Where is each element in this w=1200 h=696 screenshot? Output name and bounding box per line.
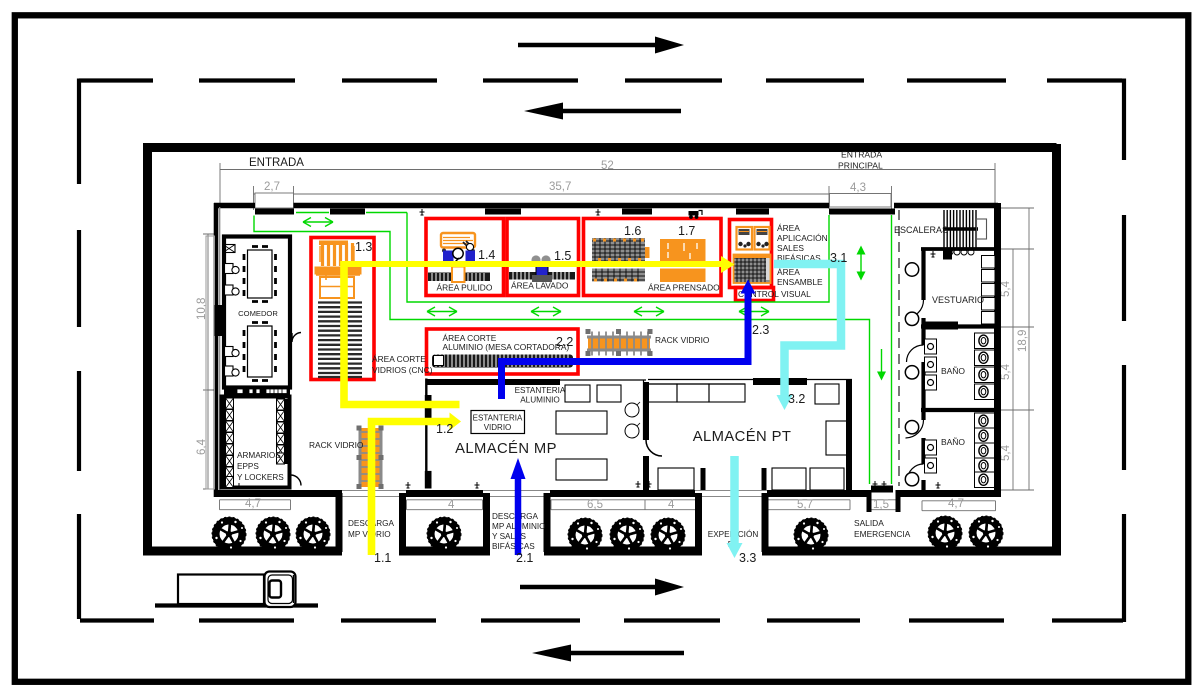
- svg-text:ÁREA CORTE: ÁREA CORTE: [372, 354, 426, 364]
- svg-text:1.3: 1.3: [355, 240, 372, 254]
- svg-text:EPPS: EPPS: [237, 462, 259, 471]
- svg-text:1,5: 1,5: [873, 499, 889, 511]
- svg-text:ALMACÉN PT: ALMACÉN PT: [693, 428, 792, 445]
- svg-text:ÁREA LAVADO: ÁREA LAVADO: [511, 281, 569, 291]
- svg-text:BAÑO: BAÑO: [941, 366, 965, 376]
- svg-text:ÁREA: ÁREA: [777, 223, 800, 233]
- svg-text:2.3: 2.3: [752, 323, 769, 337]
- svg-text:SALIDA: SALIDA: [854, 518, 884, 528]
- svg-text:ALUMINIO (MESA CORTADORA): ALUMINIO (MESA CORTADORA): [443, 342, 570, 352]
- svg-text:4,7: 4,7: [948, 498, 964, 510]
- svg-text:ALUMINIO: ALUMINIO: [520, 396, 560, 405]
- svg-text:1.4: 1.4: [478, 248, 495, 262]
- svg-text:2.2: 2.2: [556, 335, 573, 349]
- svg-text:4: 4: [668, 499, 675, 511]
- svg-text:APLICACIÓN: APLICACIÓN: [777, 233, 828, 243]
- svg-text:4: 4: [448, 499, 455, 511]
- svg-text:COMEDOR: COMEDOR: [238, 309, 278, 318]
- svg-text:ÁREA PULIDO: ÁREA PULIDO: [437, 283, 493, 293]
- svg-text:VIDRIOS (CNC): VIDRIOS (CNC): [372, 365, 433, 375]
- svg-text:3.1: 3.1: [830, 251, 847, 265]
- svg-text:ESTANTERIA: ESTANTERIA: [473, 414, 523, 423]
- svg-text:BIFÁSICAS: BIFÁSICAS: [492, 541, 535, 551]
- svg-text:ESCALERAS: ESCALERAS: [894, 225, 948, 235]
- svg-text:ENTRADA: ENTRADA: [249, 157, 304, 169]
- svg-text:5,7: 5,7: [797, 499, 813, 511]
- svg-text:5,4: 5,4: [1000, 280, 1012, 297]
- svg-text:ÁREA: ÁREA: [777, 267, 800, 277]
- svg-text:2,7: 2,7: [264, 181, 280, 193]
- svg-text:ESTANTERIA: ESTANTERIA: [515, 386, 566, 395]
- svg-text:52: 52: [601, 160, 614, 172]
- svg-text:ALMACÉN MP: ALMACÉN MP: [455, 440, 557, 457]
- svg-text:4,3: 4,3: [850, 182, 866, 194]
- svg-text:ÁREA PRENSADO: ÁREA PRENSADO: [648, 283, 720, 293]
- svg-text:ARMARIOS: ARMARIOS: [237, 451, 281, 460]
- svg-text:Y LOCKERS: Y LOCKERS: [237, 473, 284, 482]
- svg-text:BAÑO: BAÑO: [941, 437, 965, 447]
- svg-text:SALES: SALES: [777, 243, 804, 253]
- svg-text:PRINCIPAL: PRINCIPAL: [838, 161, 883, 171]
- svg-text:ENSAMBLE: ENSAMBLE: [777, 277, 823, 287]
- svg-text:3.3: 3.3: [739, 551, 756, 565]
- svg-text:35,7: 35,7: [549, 181, 571, 193]
- svg-text:5,4: 5,4: [1000, 363, 1012, 380]
- svg-text:EMERGENCIA: EMERGENCIA: [854, 529, 911, 539]
- svg-text:1.1: 1.1: [374, 551, 391, 565]
- svg-text:RACK VIDRIO: RACK VIDRIO: [309, 440, 364, 450]
- svg-text:4,7: 4,7: [245, 498, 261, 510]
- svg-text:18,9: 18,9: [1017, 330, 1029, 352]
- svg-text:1.2: 1.2: [436, 422, 453, 436]
- svg-text:1.5: 1.5: [554, 249, 571, 263]
- svg-text:5,4: 5,4: [1000, 444, 1012, 461]
- svg-text:Y SALES: Y SALES: [492, 532, 527, 541]
- svg-text:6,5: 6,5: [587, 499, 603, 511]
- svg-text:3.2: 3.2: [788, 392, 805, 406]
- svg-text:2.1: 2.1: [516, 551, 533, 565]
- svg-text:ENTRADA: ENTRADA: [841, 150, 882, 160]
- svg-text:1.7: 1.7: [678, 224, 695, 238]
- svg-text:RACK VIDRIO: RACK VIDRIO: [655, 335, 710, 345]
- svg-text:1.6: 1.6: [624, 224, 641, 238]
- svg-text:VESTUARIO: VESTUARIO: [932, 295, 984, 305]
- svg-text:VIDRIO: VIDRIO: [484, 423, 512, 432]
